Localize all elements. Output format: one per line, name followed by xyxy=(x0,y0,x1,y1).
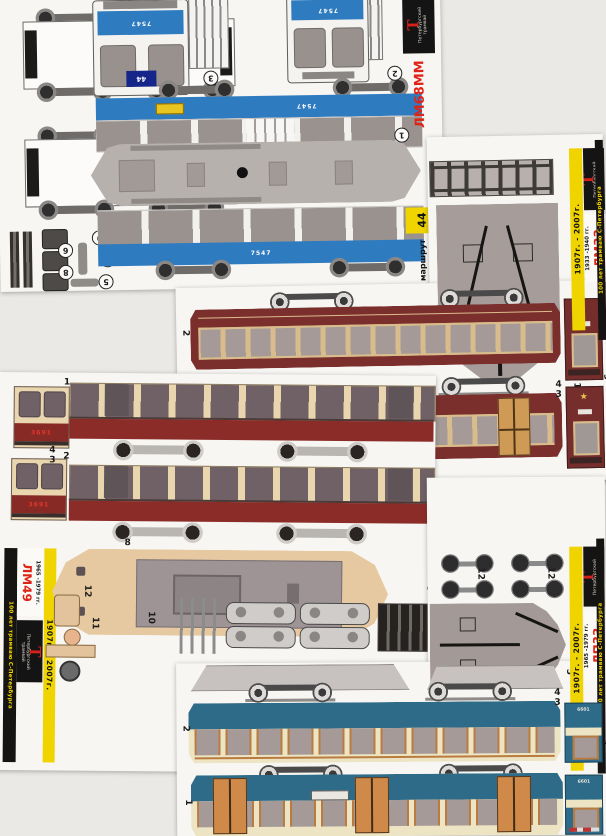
anniversary-strip: 100 лет трамваю С-Петербурга xyxy=(3,548,18,762)
front-window xyxy=(44,391,66,417)
rod-part xyxy=(71,278,99,286)
destination-plate xyxy=(311,790,349,800)
front-window xyxy=(294,28,327,68)
advert-sticker xyxy=(156,103,184,114)
wheelset-part xyxy=(437,553,497,573)
jubilee-years: 1907г. - 2007г. xyxy=(572,623,581,694)
roof-bar xyxy=(103,0,177,9)
side-window-band xyxy=(70,383,436,422)
trim-line xyxy=(195,755,555,760)
door xyxy=(498,397,531,456)
bottom-strip xyxy=(568,369,600,376)
part-number-label: 8 xyxy=(124,539,130,548)
side-skirt-strip xyxy=(10,232,20,288)
logo-inner: Т Петербургский трамвай xyxy=(20,633,39,669)
part-number-label: 3 xyxy=(49,456,55,465)
roof-dot xyxy=(76,567,85,576)
bottom-strip xyxy=(14,441,68,445)
number-plate xyxy=(578,409,592,414)
front-blue-band: 7547 xyxy=(97,10,183,35)
part-number: 2 xyxy=(392,69,398,77)
logo-letter-t: Т xyxy=(30,646,39,657)
wheelset-part xyxy=(507,553,567,573)
anniversary-text: 100 лет трамваю С-Петербурга xyxy=(7,601,14,709)
front-blue-band: 7547 xyxy=(291,0,363,20)
car-number: 6601 xyxy=(565,708,601,713)
part-number-label: 2 xyxy=(180,330,189,336)
part-number: 5 xyxy=(103,278,109,286)
bogie-wheels-icon xyxy=(267,438,377,465)
tram-end-face: 6601 xyxy=(564,703,602,763)
part-number-label: 3 xyxy=(554,699,560,708)
car-number: 7547 xyxy=(296,102,317,109)
tram-front-face: 3691 xyxy=(11,458,68,520)
model-name-box: ЛМ68ММ xyxy=(403,59,436,129)
part-number-label: 4 xyxy=(554,689,560,698)
bogie-frame-icon xyxy=(420,679,520,704)
bogie-frame-icon xyxy=(240,680,340,705)
part-number: 6 xyxy=(63,246,69,254)
wheel-disc xyxy=(59,661,80,682)
front-window xyxy=(19,391,41,417)
model-years: 1965 -1979 гг. xyxy=(34,560,40,605)
tram-end-face: 6601 xyxy=(565,775,603,835)
route-number-board: 44 xyxy=(126,70,156,86)
door-column xyxy=(105,384,129,416)
end-window xyxy=(573,736,599,760)
model-name-box: ЛМ49 1965 -1979 гг. xyxy=(17,548,44,616)
pinstripe xyxy=(198,311,552,319)
car-number: 6601 xyxy=(566,780,602,785)
bumper-strip xyxy=(569,828,599,832)
part-number-label: 5 xyxy=(98,274,113,289)
door xyxy=(213,778,247,834)
part-number-label: 4 xyxy=(555,381,561,390)
door xyxy=(497,776,531,832)
jubilee-years: 1907г. - 2007г. xyxy=(572,204,582,275)
front-body: 7547 xyxy=(286,0,369,83)
part-number-label: 4 xyxy=(49,446,55,455)
anniversary-text: 100 лет трамваю С-Петербурга xyxy=(597,186,605,294)
logo-letter-t: Т xyxy=(409,19,418,30)
door xyxy=(355,777,389,833)
logo-petersburg-tram: Т Петербургский трамвай xyxy=(16,620,43,682)
logo-line2: трамвай xyxy=(423,14,428,34)
tram-side-piece xyxy=(190,303,561,370)
front-red-band: 3691 xyxy=(14,423,68,441)
car-number: 7547 xyxy=(130,19,151,26)
black-tab xyxy=(25,30,38,78)
part-number-label: 12 xyxy=(545,567,554,580)
logo-line2: трамвай xyxy=(20,641,25,661)
front-window xyxy=(41,463,63,489)
door-column xyxy=(104,466,128,498)
wheelset-part xyxy=(437,579,497,599)
part-number-label: 1 xyxy=(183,799,192,805)
roof-line xyxy=(440,643,520,647)
logo-line1: Петербургский xyxy=(25,633,30,669)
car-number: 3691 xyxy=(28,501,49,508)
part-number-label: 12 xyxy=(475,567,484,580)
cream-band xyxy=(565,728,601,736)
anniversary-text: 100 лет трамваю С-Петербурга xyxy=(598,602,605,710)
bottom-strip xyxy=(12,513,66,517)
cream-band xyxy=(566,800,602,808)
front-window xyxy=(16,463,38,489)
tram-side-piece xyxy=(188,701,560,764)
route-number: 44 xyxy=(136,75,146,83)
side-skirt-strip xyxy=(23,231,33,287)
tram-front-face: 3691 xyxy=(13,386,70,448)
black-tab xyxy=(26,148,39,196)
roof-hatch xyxy=(119,160,155,193)
bogie-wheels-icon xyxy=(103,437,213,464)
rod-part xyxy=(78,243,88,275)
scanned-papercraft-collage: 10 10 6 8 9 7 5 xyxy=(0,0,606,836)
tram-side-piece-doors xyxy=(191,773,563,836)
part-number-label: 11 xyxy=(90,617,99,630)
door-column xyxy=(389,386,413,418)
front-red-band: 3691 xyxy=(12,495,66,513)
front-window xyxy=(332,27,365,67)
part-number-label: 2 xyxy=(180,725,189,731)
coupler-bar xyxy=(46,644,96,657)
wheelset-part xyxy=(507,579,567,599)
door-leaves-part xyxy=(188,0,229,69)
logo-petersburg-tram: Т Петербургский трамвай xyxy=(402,0,435,54)
side-teal-band xyxy=(188,701,560,730)
model-name: ЛМ68ММ xyxy=(413,60,427,128)
part-number-label: 2 xyxy=(63,453,69,462)
part-number-label: 10 xyxy=(146,611,155,624)
side-window-row xyxy=(198,321,553,360)
resistor-part xyxy=(54,594,80,626)
end-window xyxy=(571,333,598,367)
star-icon: ★ xyxy=(580,393,588,402)
sheet-lp33: 12 12 5 1907г. - 2007г. Т Петербургский … xyxy=(175,477,606,836)
coupler-circle xyxy=(64,629,81,646)
bottom-strip xyxy=(570,457,602,464)
tram-front-piece: 7547 xyxy=(286,0,367,83)
part-number-label: 6 xyxy=(58,243,73,258)
end-window xyxy=(573,421,600,455)
tram-side-piece xyxy=(69,383,433,444)
tram-end-face: ★ xyxy=(565,386,605,469)
car-number: 3691 xyxy=(31,429,52,436)
model-name: ЛМ49 xyxy=(21,563,33,602)
part-number-label: 9 xyxy=(601,374,606,380)
car-number: 7547 xyxy=(317,6,338,13)
side-window-row xyxy=(195,727,555,756)
part-number-label: 3 xyxy=(556,391,562,400)
roof-hatch-outline xyxy=(460,617,476,631)
ladder-part xyxy=(429,159,554,197)
part-number-label: 8 xyxy=(58,265,73,280)
logo-inner: Т Петербургский трамвай xyxy=(409,6,429,42)
part-number: 8 xyxy=(63,268,69,276)
part-number-label: 12 xyxy=(82,585,91,598)
part-number-label: 9 xyxy=(601,738,606,744)
